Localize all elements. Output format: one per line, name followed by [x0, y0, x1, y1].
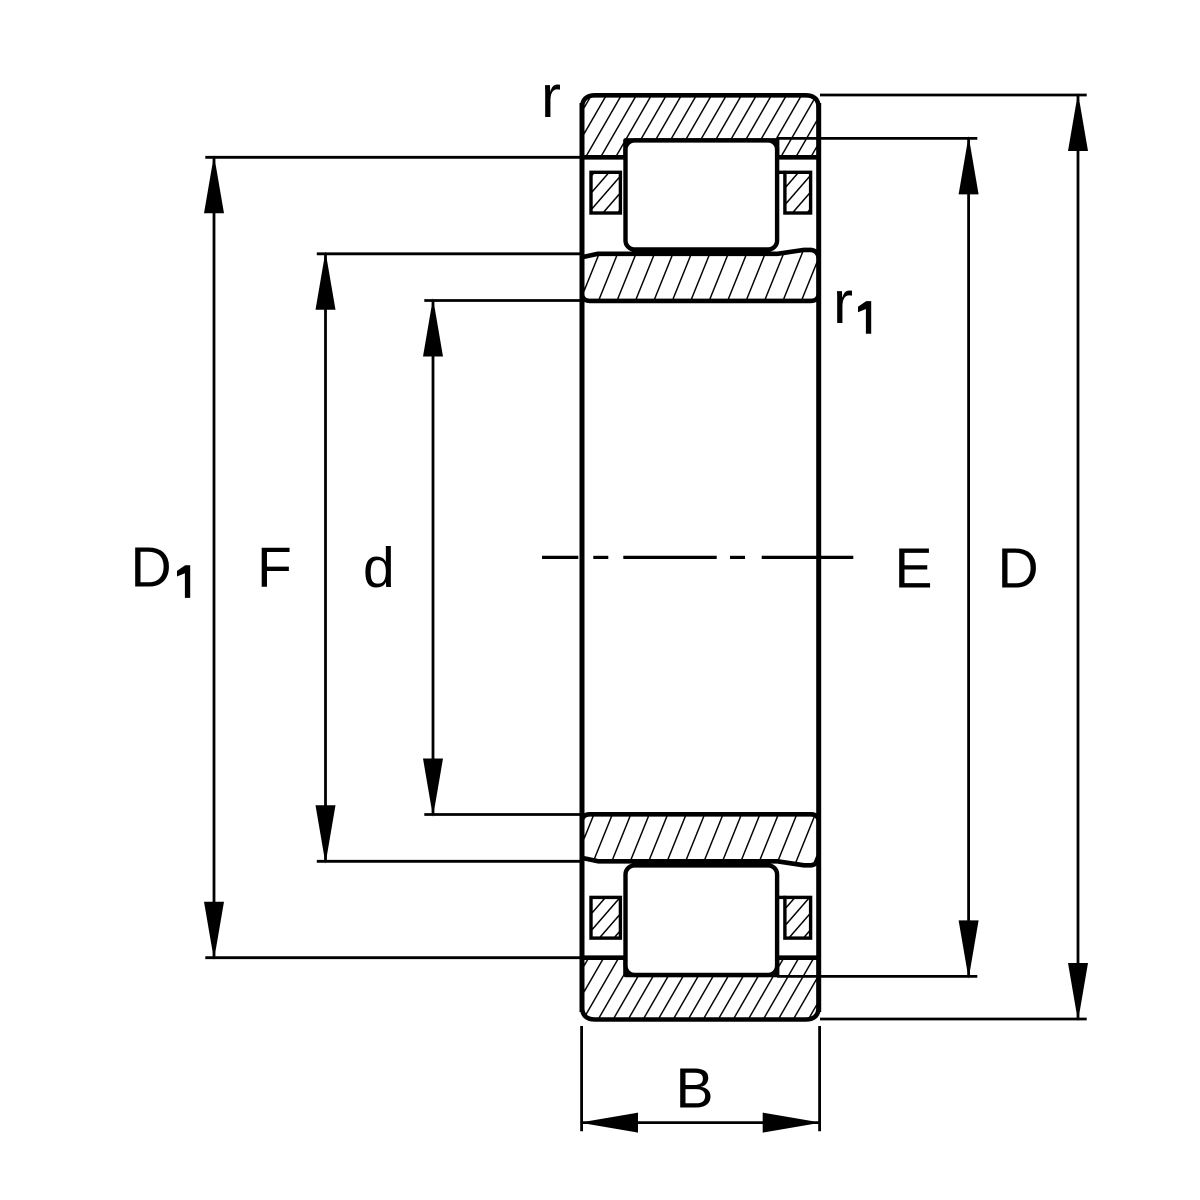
svg-text:B: B — [676, 1057, 714, 1121]
svg-text:d: d — [363, 536, 395, 600]
svg-text:r: r — [541, 63, 561, 130]
svg-text:r: r — [833, 269, 853, 336]
svg-text:F: F — [257, 536, 292, 600]
svg-text:D: D — [131, 536, 172, 600]
svg-text:E: E — [895, 536, 933, 600]
svg-text:D: D — [998, 536, 1039, 600]
